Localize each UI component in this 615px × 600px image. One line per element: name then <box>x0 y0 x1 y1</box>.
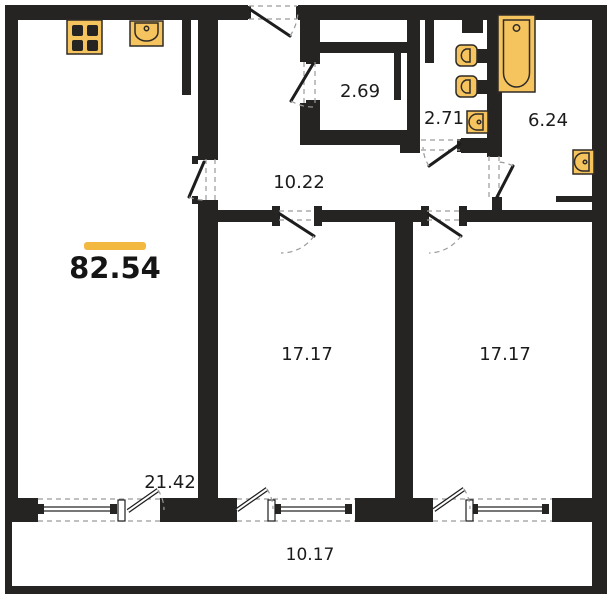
door-bathroom <box>489 156 513 198</box>
toilet-icon <box>456 45 489 66</box>
room-area-balcony: 10.17 <box>286 545 335 565</box>
wc-sink-icon <box>467 111 488 133</box>
stove-icon <box>67 20 102 54</box>
window-bedroom-right <box>466 500 549 521</box>
kitchen-sink-icon <box>130 21 163 46</box>
door-wc <box>421 140 460 166</box>
floor-plan-drawing: 82.54 2.69 2.71 6.24 10.22 21.42 17.17 1… <box>0 0 615 600</box>
room-area-storage: 2.69 <box>340 81 380 102</box>
total-area-value: 82.54 <box>69 251 161 285</box>
toilet-icon-2 <box>456 76 489 97</box>
window-living <box>37 500 125 521</box>
room-area-hallway: 10.22 <box>273 172 325 193</box>
room-area-living: 21.42 <box>144 472 196 493</box>
door-living <box>189 159 215 201</box>
total-area-accent-bar <box>84 242 146 250</box>
door-bedroom-right <box>427 211 461 253</box>
room-area-bedroom-left: 17.17 <box>281 344 333 365</box>
room-area-bathroom: 6.24 <box>528 110 568 131</box>
room-area-bedroom-right: 17.17 <box>479 344 531 365</box>
entrance-door <box>249 6 298 36</box>
floor-plan: 82.54 2.69 2.71 6.24 10.22 21.42 17.17 1… <box>0 0 615 600</box>
room-area-wc: 2.71 <box>424 108 464 129</box>
bathroom-sink-icon <box>573 150 594 174</box>
window-bedroom-left <box>268 500 352 521</box>
bathtub-icon <box>498 15 535 92</box>
walls <box>5 5 607 594</box>
door-bedroom-left <box>279 211 315 253</box>
balcony-door-living <box>128 490 164 511</box>
total-area-label: 82.54 <box>69 242 161 285</box>
